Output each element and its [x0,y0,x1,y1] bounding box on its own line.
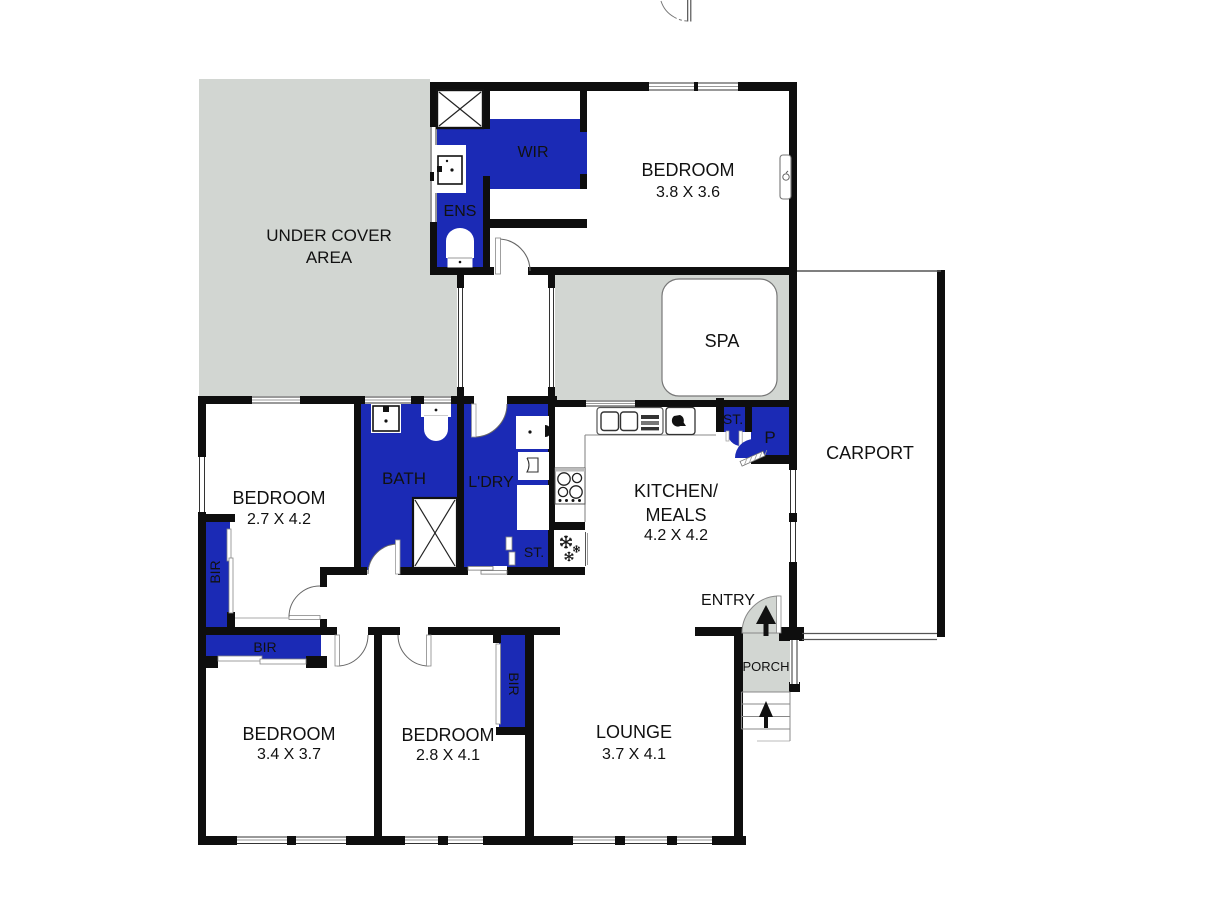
svg-text:P: P [764,428,775,447]
svg-text:ENS: ENS [444,203,477,220]
svg-text:2.8 X 4.1: 2.8 X 4.1 [416,747,480,764]
svg-text:BIR: BIR [253,639,276,655]
svg-text:3.7 X 4.1: 3.7 X 4.1 [602,746,666,763]
svg-text:BIR: BIR [506,672,522,695]
svg-text:ENTRY: ENTRY [701,592,755,609]
svg-text:L'DRY: L'DRY [468,474,514,491]
svg-text:BATH: BATH [382,469,426,488]
svg-text:ST.: ST. [524,544,544,560]
svg-text:PORCH: PORCH [743,659,790,674]
svg-text:3.8 X 3.6: 3.8 X 3.6 [656,184,720,201]
svg-text:LOUNGE: LOUNGE [596,722,672,742]
svg-text:SPA: SPA [705,331,740,351]
svg-text:AREA: AREA [306,248,353,267]
svg-text:3.4 X 3.7: 3.4 X 3.7 [257,746,321,763]
svg-text:KITCHEN/: KITCHEN/ [634,481,718,501]
svg-text:2.7 X 4.2: 2.7 X 4.2 [247,511,311,528]
svg-text:MEALS: MEALS [645,505,706,525]
svg-text:BEDROOM: BEDROOM [641,160,734,180]
svg-text:BEDROOM: BEDROOM [401,725,494,745]
svg-text:UNDER COVER: UNDER COVER [266,226,392,245]
svg-text:BIR: BIR [207,560,223,583]
svg-text:4.2 X 4.2: 4.2 X 4.2 [644,527,708,544]
svg-text:CARPORT: CARPORT [826,443,914,463]
svg-text:ST.: ST. [723,411,743,427]
svg-text:WIR: WIR [517,144,548,161]
svg-text:BEDROOM: BEDROOM [232,488,325,508]
svg-text:BEDROOM: BEDROOM [242,724,335,744]
